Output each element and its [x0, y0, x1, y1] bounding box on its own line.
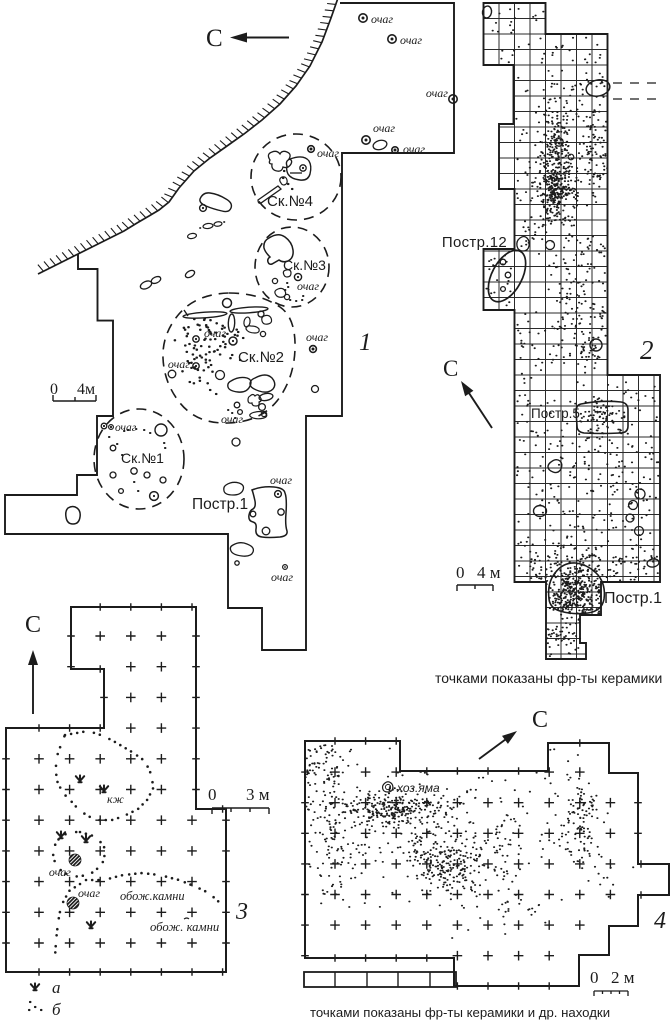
svg-text:0: 0	[208, 785, 217, 804]
svg-text:очаг: очаг	[306, 330, 328, 344]
svg-text:4 м: 4 м	[477, 563, 501, 582]
svg-text:очаг: очаг	[168, 357, 190, 371]
svg-text:0: 0	[456, 563, 465, 582]
svg-text:б: б	[52, 1000, 61, 1019]
svg-text:2: 2	[640, 335, 654, 365]
svg-text:а: а	[52, 978, 61, 997]
svg-text:Постр.5: Постр.5	[531, 406, 580, 421]
svg-text:С: С	[25, 612, 41, 638]
svg-text:4м: 4м	[77, 381, 95, 398]
svg-text:очаг: очаг	[297, 279, 319, 293]
svg-text:хоз.яма: хоз.яма	[396, 781, 440, 795]
svg-text:обож.камни: обож.камни	[120, 889, 185, 903]
svg-text:0: 0	[590, 968, 599, 987]
svg-text:очаг: очаг	[221, 412, 243, 426]
svg-text:точками показаны фр-ты керамик: точками показаны фр-ты керамики	[435, 670, 662, 686]
svg-text:Постр.1: Постр.1	[192, 496, 248, 513]
svg-text:0: 0	[50, 381, 58, 398]
svg-text:кж: кж	[107, 792, 124, 806]
svg-text:очаг: очаг	[426, 86, 448, 100]
svg-text:3: 3	[235, 899, 248, 925]
svg-text:Ск.№4: Ск.№4	[267, 193, 313, 210]
svg-text:Постр.12: Постр.12	[442, 234, 507, 251]
svg-text:очаг: очаг	[373, 121, 395, 135]
svg-text:точками показаны фр-ты керамик: точками показаны фр-ты керамики и др. на…	[310, 1005, 610, 1020]
svg-text:очаг: очаг	[78, 886, 100, 900]
svg-text:очаг: очаг	[271, 570, 293, 584]
svg-text:очаг: очаг	[49, 865, 71, 879]
svg-text:4: 4	[654, 908, 666, 934]
svg-text:Ск.№2: Ск.№2	[238, 349, 284, 366]
svg-text:С: С	[206, 25, 223, 52]
svg-text:3 м: 3 м	[246, 785, 270, 804]
svg-text:очаг: очаг	[400, 33, 422, 47]
svg-text:2 м: 2 м	[611, 968, 635, 987]
svg-text:С: С	[532, 707, 548, 733]
svg-text:обож. камни: обож. камни	[150, 920, 219, 934]
svg-text:очаг: очаг	[270, 473, 292, 487]
svg-text:очаг: очаг	[403, 142, 425, 156]
svg-text:очаг: очаг	[115, 422, 137, 434]
svg-text:очаг: очаг	[317, 146, 339, 160]
svg-text:очаг: очаг	[371, 12, 393, 26]
svg-text:Ск.№1: Ск.№1	[121, 450, 164, 466]
svg-text:1: 1	[359, 329, 372, 356]
svg-text:С: С	[443, 356, 458, 381]
svg-text:Постр.1: Постр.1	[604, 590, 662, 607]
